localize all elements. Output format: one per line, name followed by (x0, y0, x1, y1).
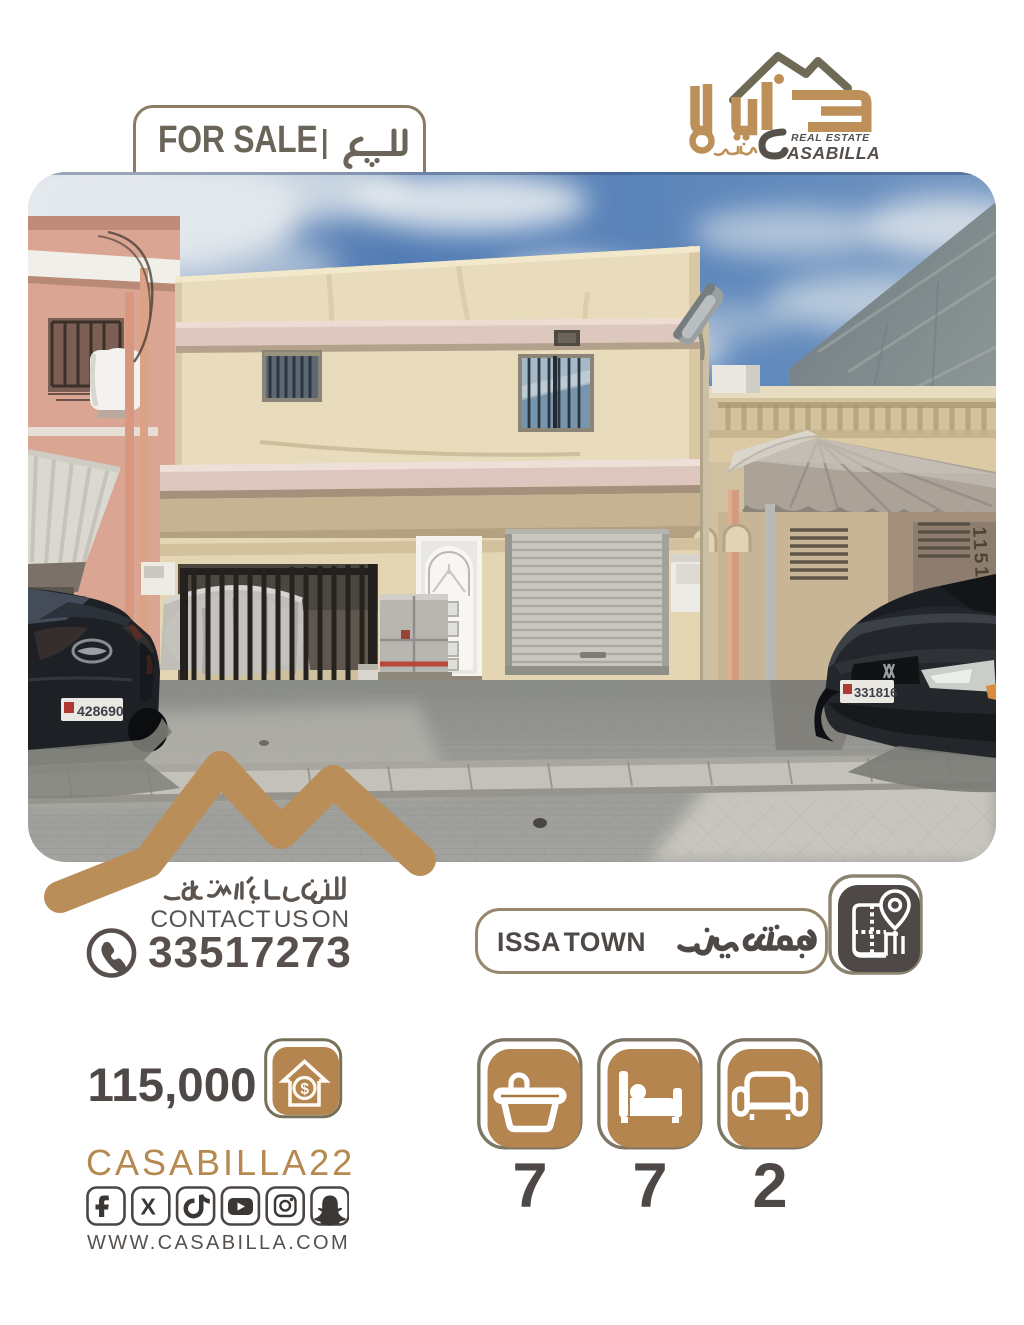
svg-text:X: X (141, 1194, 157, 1220)
svg-text:428690: 428690 (77, 703, 124, 719)
svg-text:1151: 1151 (968, 526, 992, 580)
svg-text:331816: 331816 (854, 685, 897, 700)
svg-text:$: $ (300, 1081, 309, 1098)
svg-text:ASABILLA: ASABILLA (786, 143, 880, 163)
